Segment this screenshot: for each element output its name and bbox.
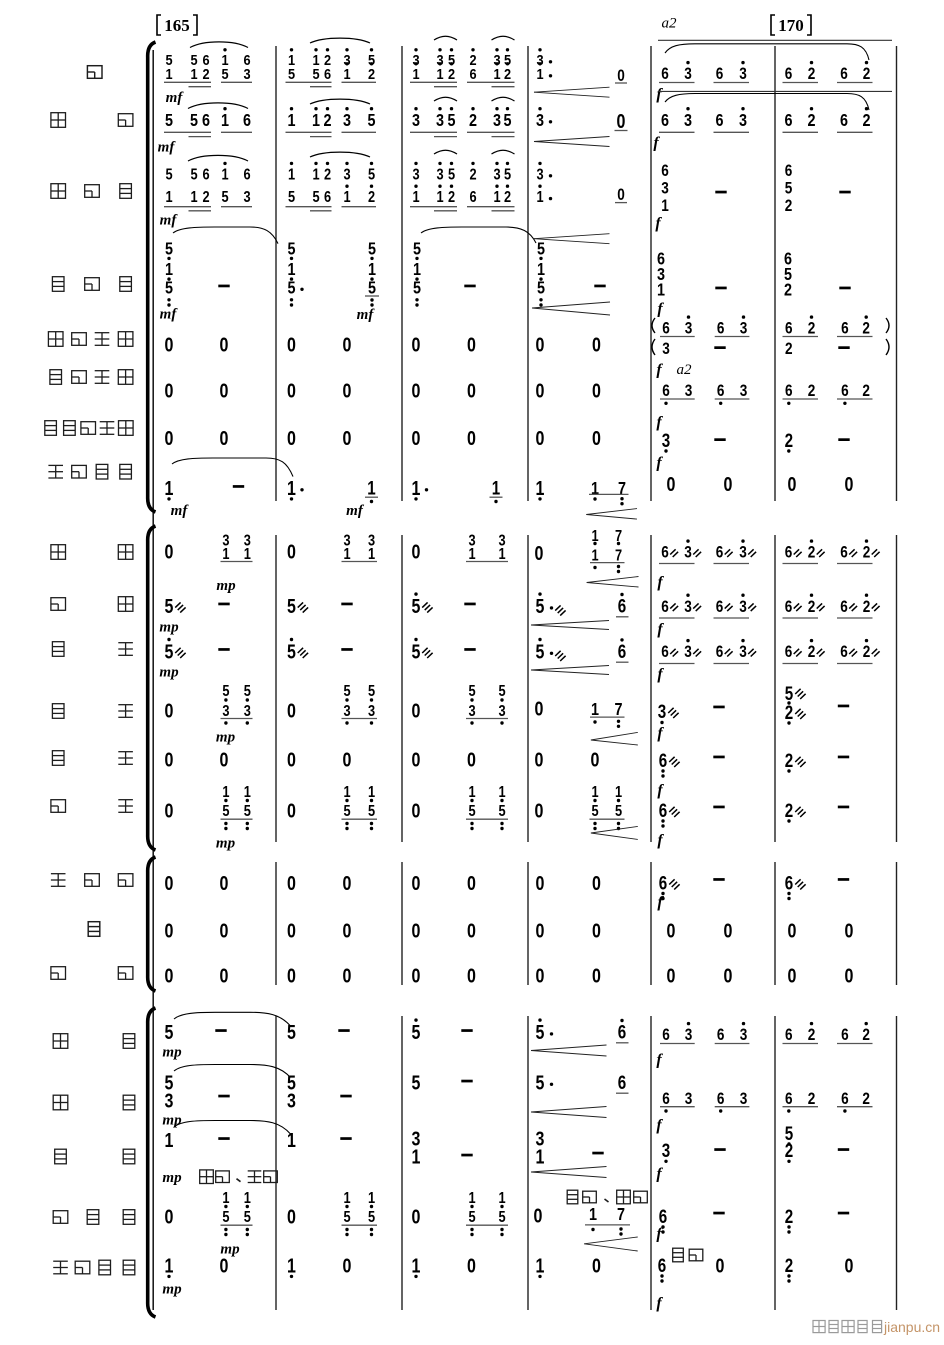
svg-text:5: 5 <box>343 683 350 701</box>
svg-text:0: 0 <box>788 965 797 987</box>
svg-text:6: 6 <box>840 643 848 662</box>
svg-text:0: 0 <box>220 1255 229 1277</box>
svg-text:5: 5 <box>785 179 793 198</box>
svg-text:3: 3 <box>536 111 544 131</box>
svg-text:5: 5 <box>503 111 511 131</box>
svg-text:5: 5 <box>536 1021 545 1043</box>
svg-text:1: 1 <box>492 477 501 499</box>
svg-text:3: 3 <box>684 111 692 131</box>
svg-text:0: 0 <box>412 749 421 771</box>
svg-text:0: 0 <box>724 965 733 987</box>
svg-text:6: 6 <box>659 872 667 894</box>
svg-text:5: 5 <box>368 166 375 184</box>
svg-text:0: 0 <box>536 872 545 894</box>
svg-text:6: 6 <box>659 1205 667 1227</box>
svg-text:mf: mf <box>357 307 376 323</box>
svg-text:1: 1 <box>368 1190 375 1208</box>
svg-text:5: 5 <box>413 278 421 298</box>
svg-text:0: 0 <box>343 1255 352 1277</box>
svg-text:3: 3 <box>343 166 350 184</box>
svg-text:0: 0 <box>287 334 296 356</box>
svg-text:1: 1 <box>412 1146 421 1168</box>
svg-text:1: 1 <box>412 477 421 499</box>
svg-text:2: 2 <box>785 799 793 821</box>
svg-text:2: 2 <box>863 65 871 84</box>
svg-text:0: 0 <box>165 541 174 563</box>
svg-text:6: 6 <box>717 319 725 338</box>
svg-text:1: 1 <box>436 189 443 207</box>
svg-text:0: 0 <box>165 872 174 894</box>
svg-text:3: 3 <box>468 703 475 721</box>
svg-text:5: 5 <box>165 595 174 617</box>
svg-text:5: 5 <box>288 189 295 207</box>
svg-text:1: 1 <box>244 1190 251 1208</box>
svg-text:5: 5 <box>244 683 251 701</box>
svg-text:1: 1 <box>368 784 375 802</box>
svg-text:1: 1 <box>661 197 669 216</box>
svg-text:1: 1 <box>536 1255 545 1277</box>
svg-text:5: 5 <box>498 1209 505 1227</box>
svg-text:mp: mp <box>162 1045 182 1061</box>
svg-text:1: 1 <box>468 784 475 802</box>
svg-text:5: 5 <box>165 641 174 663</box>
svg-text:6: 6 <box>662 319 670 338</box>
svg-text:3: 3 <box>436 166 443 184</box>
svg-text:3: 3 <box>685 319 693 338</box>
svg-text:6: 6 <box>717 382 725 401</box>
svg-text:5: 5 <box>343 803 350 821</box>
svg-text:0: 0 <box>467 872 476 894</box>
svg-text:5: 5 <box>244 803 251 821</box>
svg-text:6: 6 <box>717 1090 725 1109</box>
svg-text:0: 0 <box>716 1255 725 1277</box>
svg-text:0: 0 <box>788 473 797 495</box>
svg-text:2: 2 <box>504 189 511 207</box>
svg-text:1: 1 <box>589 1205 597 1225</box>
svg-text:3: 3 <box>684 597 692 616</box>
svg-text:3: 3 <box>222 703 229 721</box>
svg-text:0: 0 <box>592 380 601 402</box>
svg-text:1: 1 <box>493 189 500 207</box>
svg-text:3: 3 <box>412 166 419 184</box>
svg-text:3: 3 <box>243 65 250 82</box>
svg-text:2: 2 <box>863 643 871 662</box>
svg-text:0: 0 <box>412 1206 421 1228</box>
svg-text:6: 6 <box>662 382 670 401</box>
svg-text:6: 6 <box>661 65 669 84</box>
svg-text:3: 3 <box>740 1026 748 1045</box>
svg-text:2: 2 <box>448 189 455 207</box>
svg-text:mp: mp <box>216 730 236 746</box>
svg-text:6: 6 <box>840 543 848 562</box>
svg-text:5: 5 <box>165 166 172 184</box>
svg-text:5: 5 <box>343 1209 350 1227</box>
svg-text:2: 2 <box>368 65 375 82</box>
svg-text:a2: a2 <box>662 16 678 32</box>
svg-text:3: 3 <box>684 643 692 662</box>
svg-text:5: 5 <box>222 1209 229 1227</box>
svg-text:0: 0 <box>412 380 421 402</box>
svg-text:6: 6 <box>469 65 476 82</box>
svg-text:5: 5 <box>312 189 319 207</box>
svg-text:1: 1 <box>343 189 350 207</box>
svg-text:3: 3 <box>287 1090 296 1112</box>
svg-text:3: 3 <box>412 111 420 131</box>
svg-text:2: 2 <box>368 189 375 207</box>
svg-text:3: 3 <box>493 166 500 184</box>
svg-text:2: 2 <box>808 543 816 562</box>
svg-text:5: 5 <box>368 803 375 821</box>
svg-text:1: 1 <box>287 1129 296 1151</box>
svg-text:1: 1 <box>221 111 229 131</box>
svg-text:6: 6 <box>662 1026 670 1045</box>
svg-text:2: 2 <box>862 1026 870 1045</box>
svg-text:3: 3 <box>165 1090 174 1112</box>
svg-text:0: 0 <box>412 427 421 449</box>
svg-text:1: 1 <box>536 477 545 499</box>
svg-text:6: 6 <box>469 189 476 207</box>
svg-text:6: 6 <box>618 1021 626 1043</box>
svg-text:6: 6 <box>717 1026 725 1045</box>
svg-text:5: 5 <box>287 641 296 663</box>
svg-text:3: 3 <box>662 429 670 451</box>
svg-text:5: 5 <box>448 166 455 184</box>
svg-text:7: 7 <box>618 479 626 499</box>
svg-text:0: 0 <box>287 427 296 449</box>
svg-text:1: 1 <box>312 111 320 131</box>
svg-text:0: 0 <box>845 965 854 987</box>
svg-text:2: 2 <box>808 65 816 84</box>
svg-text:1: 1 <box>287 1255 296 1277</box>
svg-text:0: 0 <box>287 800 296 822</box>
svg-text:0: 0 <box>667 965 676 987</box>
svg-text:0: 0 <box>845 473 854 495</box>
svg-text:3: 3 <box>368 703 375 721</box>
svg-text:1: 1 <box>412 1255 421 1277</box>
svg-text:mp: mp <box>159 620 179 636</box>
svg-text:0: 0 <box>343 872 352 894</box>
svg-text:1: 1 <box>165 260 173 280</box>
svg-text:0: 0 <box>287 700 296 722</box>
svg-text:1: 1 <box>498 1190 505 1208</box>
svg-text:6: 6 <box>716 65 724 84</box>
svg-text:1: 1 <box>165 1129 174 1151</box>
svg-text:2: 2 <box>785 1254 793 1276</box>
svg-text:6: 6 <box>202 166 209 184</box>
svg-text:5: 5 <box>498 683 505 701</box>
svg-text:5: 5 <box>468 1209 475 1227</box>
svg-text:6: 6 <box>202 111 210 131</box>
svg-text:0: 0 <box>467 334 476 356</box>
svg-text:2: 2 <box>504 65 511 82</box>
svg-text:0: 0 <box>412 965 421 987</box>
svg-text:2: 2 <box>862 1090 870 1109</box>
svg-text:2: 2 <box>785 429 793 451</box>
svg-text:6: 6 <box>618 640 626 662</box>
svg-text:jianpu.cn: jianpu.cn <box>883 1319 940 1335</box>
svg-text:6: 6 <box>785 1090 793 1109</box>
svg-text:0: 0 <box>165 334 174 356</box>
svg-text:1: 1 <box>536 189 543 207</box>
svg-text:3: 3 <box>739 111 747 131</box>
svg-text:3: 3 <box>244 703 251 721</box>
svg-text:3: 3 <box>436 111 444 131</box>
svg-text:6: 6 <box>785 872 793 894</box>
svg-text:5: 5 <box>413 239 421 259</box>
svg-text:0: 0 <box>220 920 229 942</box>
svg-text:3: 3 <box>740 1090 748 1109</box>
svg-text:0: 0 <box>845 920 854 942</box>
svg-text:2: 2 <box>202 65 209 82</box>
svg-text:1: 1 <box>412 189 419 207</box>
svg-text:mf: mf <box>160 307 179 323</box>
svg-text:5: 5 <box>244 1209 251 1227</box>
svg-text:0: 0 <box>535 800 544 822</box>
svg-text:1: 1 <box>165 65 172 82</box>
svg-text:0: 0 <box>220 380 229 402</box>
svg-text:0: 0 <box>412 334 421 356</box>
svg-text:3: 3 <box>740 382 748 401</box>
svg-text:5: 5 <box>190 166 197 184</box>
svg-text:6: 6 <box>841 1090 849 1109</box>
svg-text:mp: mp <box>162 1282 182 1298</box>
svg-text:1: 1 <box>498 546 505 564</box>
svg-text:2: 2 <box>785 340 793 359</box>
svg-text:2: 2 <box>862 382 870 401</box>
svg-text:0: 0 <box>667 473 676 495</box>
svg-text:6: 6 <box>716 543 724 562</box>
svg-text:3: 3 <box>739 597 747 616</box>
svg-text:6: 6 <box>785 643 793 662</box>
svg-text:1: 1 <box>537 260 545 280</box>
svg-text:0: 0 <box>343 427 352 449</box>
svg-text:6: 6 <box>785 1026 793 1045</box>
svg-text:5: 5 <box>468 683 475 701</box>
svg-text:2: 2 <box>808 1026 816 1045</box>
svg-text:0: 0 <box>536 427 545 449</box>
svg-text:mf: mf <box>160 213 179 229</box>
svg-text:1: 1 <box>222 784 229 802</box>
svg-text:6: 6 <box>618 595 626 617</box>
svg-text:1: 1 <box>412 65 419 82</box>
svg-text:3: 3 <box>684 65 692 84</box>
svg-text:mp: mp <box>162 1113 182 1129</box>
svg-text:5: 5 <box>412 641 421 663</box>
svg-text:0: 0 <box>343 920 352 942</box>
svg-text:0: 0 <box>536 380 545 402</box>
svg-text:5: 5 <box>368 278 376 298</box>
svg-text:2: 2 <box>808 597 816 616</box>
svg-text:0: 0 <box>617 186 625 205</box>
svg-text:2: 2 <box>785 197 793 216</box>
svg-text:0: 0 <box>535 749 544 771</box>
svg-text:5: 5 <box>368 239 376 259</box>
svg-text:2: 2 <box>785 749 793 771</box>
svg-text:5: 5 <box>312 65 319 82</box>
svg-text:6: 6 <box>785 65 793 84</box>
svg-text:5: 5 <box>165 111 173 131</box>
svg-text:0: 0 <box>220 749 229 771</box>
svg-text:2: 2 <box>202 189 209 207</box>
svg-text:1: 1 <box>493 65 500 82</box>
svg-text:1: 1 <box>468 1190 475 1208</box>
svg-text:2: 2 <box>808 382 816 401</box>
svg-text:0: 0 <box>220 965 229 987</box>
svg-text:0: 0 <box>220 872 229 894</box>
svg-text:6: 6 <box>841 1026 849 1045</box>
svg-text:5: 5 <box>537 278 545 298</box>
svg-text:0: 0 <box>592 427 601 449</box>
svg-text:0: 0 <box>165 800 174 822</box>
svg-text:6: 6 <box>785 543 793 562</box>
svg-text:5: 5 <box>222 683 229 701</box>
svg-text:1: 1 <box>468 546 475 564</box>
svg-text:3: 3 <box>685 382 693 401</box>
svg-text:1: 1 <box>591 479 599 499</box>
svg-text:5: 5 <box>536 1072 545 1094</box>
svg-text:0: 0 <box>165 1206 174 1228</box>
svg-text:5: 5 <box>287 278 295 298</box>
svg-text:2: 2 <box>448 65 455 82</box>
svg-text:3: 3 <box>740 319 748 338</box>
svg-text:5: 5 <box>190 111 198 131</box>
svg-text:2: 2 <box>808 1090 816 1109</box>
svg-text:1: 1 <box>343 1190 350 1208</box>
svg-text:3: 3 <box>343 703 350 721</box>
svg-text:1: 1 <box>343 65 350 82</box>
svg-text:2: 2 <box>469 166 476 184</box>
svg-text:0: 0 <box>592 920 601 942</box>
svg-text:0: 0 <box>343 380 352 402</box>
svg-text:1: 1 <box>413 260 421 280</box>
svg-text:170: 170 <box>778 16 804 35</box>
svg-text:1: 1 <box>222 546 229 564</box>
svg-text:mp: mp <box>162 1170 182 1186</box>
svg-text:6: 6 <box>658 1254 666 1276</box>
svg-text:0: 0 <box>467 749 476 771</box>
svg-text:0: 0 <box>412 920 421 942</box>
svg-text:3: 3 <box>661 179 669 198</box>
svg-text:0: 0 <box>592 334 601 356</box>
svg-text:0: 0 <box>845 1255 854 1277</box>
svg-text:6: 6 <box>661 162 669 181</box>
svg-text:0: 0 <box>535 698 544 720</box>
svg-text:5: 5 <box>368 1209 375 1227</box>
svg-text:6: 6 <box>784 111 792 131</box>
svg-text:0: 0 <box>343 965 352 987</box>
svg-text:5: 5 <box>165 1021 174 1043</box>
svg-text:6: 6 <box>243 166 250 184</box>
svg-text:0: 0 <box>287 965 296 987</box>
svg-text:0: 0 <box>617 110 626 132</box>
svg-text:0: 0 <box>287 1206 296 1228</box>
svg-text:1: 1 <box>615 784 622 802</box>
svg-text:3: 3 <box>685 1090 693 1109</box>
svg-text:5: 5 <box>222 803 229 821</box>
svg-text:0: 0 <box>220 334 229 356</box>
svg-text:3: 3 <box>739 543 747 562</box>
svg-text:0: 0 <box>534 1205 543 1227</box>
svg-text:6: 6 <box>662 1090 670 1109</box>
svg-text:2: 2 <box>863 543 871 562</box>
svg-text:1: 1 <box>536 65 543 82</box>
svg-text:2: 2 <box>324 166 331 184</box>
svg-text:1: 1 <box>657 280 665 300</box>
svg-text:165: 165 <box>164 16 190 35</box>
svg-text:3: 3 <box>739 65 747 84</box>
svg-text:0: 0 <box>287 920 296 942</box>
svg-text:6: 6 <box>715 111 723 131</box>
svg-text:mp: mp <box>216 578 236 594</box>
svg-text:6: 6 <box>840 111 848 131</box>
svg-text:3: 3 <box>684 543 692 562</box>
svg-text:1: 1 <box>287 477 296 499</box>
svg-text:5: 5 <box>412 595 421 617</box>
svg-text:6: 6 <box>785 382 793 401</box>
svg-text:0: 0 <box>343 334 352 356</box>
svg-text:0: 0 <box>592 965 601 987</box>
svg-text:5: 5 <box>221 65 228 82</box>
svg-text:1: 1 <box>190 189 197 207</box>
svg-text:1: 1 <box>288 166 295 184</box>
svg-text:2: 2 <box>469 111 477 131</box>
svg-text:2: 2 <box>785 1139 793 1161</box>
svg-text:5: 5 <box>287 239 295 259</box>
svg-text:mf: mf <box>158 140 177 156</box>
svg-text:1: 1 <box>165 1255 174 1277</box>
svg-text:3: 3 <box>739 643 747 662</box>
svg-text:3: 3 <box>662 1139 670 1161</box>
svg-text:0: 0 <box>287 749 296 771</box>
svg-text:1: 1 <box>367 477 376 499</box>
svg-text:mf: mf <box>171 503 190 519</box>
svg-text:6: 6 <box>661 111 669 131</box>
svg-text:1: 1 <box>165 477 174 499</box>
svg-text:0: 0 <box>412 872 421 894</box>
svg-text:5: 5 <box>288 65 295 82</box>
svg-text:0: 0 <box>536 965 545 987</box>
svg-text:3: 3 <box>658 700 666 722</box>
svg-text:0: 0 <box>592 1255 601 1277</box>
svg-text:6: 6 <box>243 111 251 131</box>
svg-text:5: 5 <box>221 189 228 207</box>
svg-text:6: 6 <box>840 597 848 616</box>
svg-text:5: 5 <box>447 111 455 131</box>
svg-text:5: 5 <box>615 803 622 821</box>
svg-text:5: 5 <box>536 595 545 617</box>
svg-text:1: 1 <box>498 784 505 802</box>
svg-text:6: 6 <box>324 65 331 82</box>
svg-text:5: 5 <box>165 278 173 298</box>
svg-text:0: 0 <box>287 541 296 563</box>
svg-text:0: 0 <box>724 473 733 495</box>
svg-text:6: 6 <box>716 643 724 662</box>
svg-text:6: 6 <box>661 597 669 616</box>
svg-text:5: 5 <box>412 1021 421 1043</box>
svg-text:0: 0 <box>165 965 174 987</box>
svg-text:6: 6 <box>841 382 849 401</box>
svg-text:0: 0 <box>467 1255 476 1277</box>
svg-text:6: 6 <box>324 189 331 207</box>
svg-text:5: 5 <box>367 111 375 131</box>
svg-text:0: 0 <box>412 541 421 563</box>
svg-text:0: 0 <box>165 700 174 722</box>
svg-text:5: 5 <box>468 803 475 821</box>
svg-text:6: 6 <box>785 162 793 181</box>
svg-text:3: 3 <box>498 703 505 721</box>
svg-text:3: 3 <box>536 166 543 184</box>
svg-text:2: 2 <box>323 111 331 131</box>
